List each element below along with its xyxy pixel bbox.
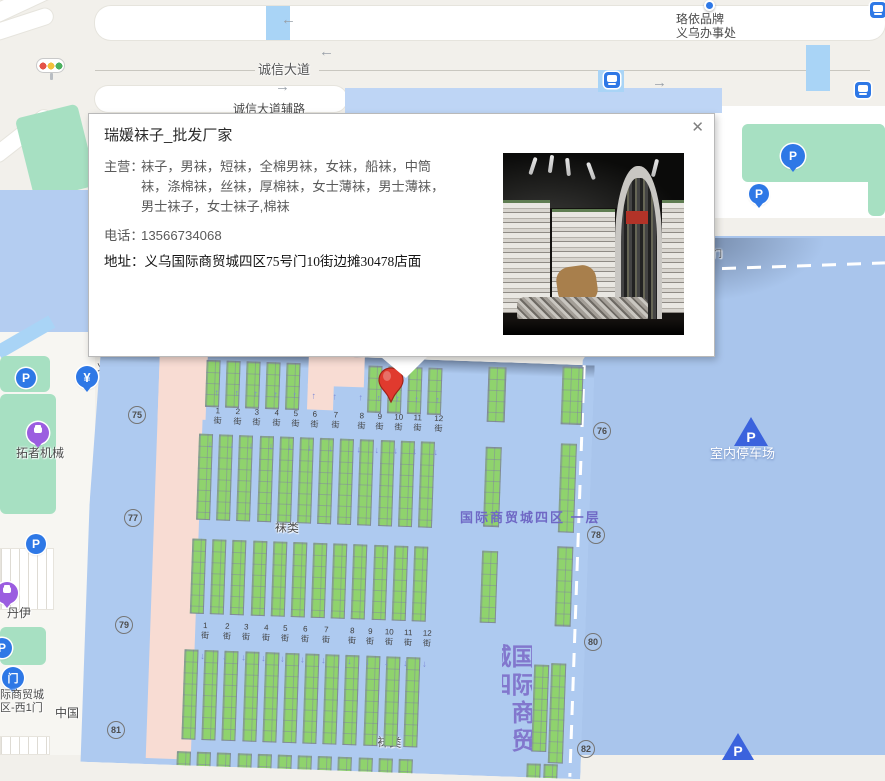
bus-stop-icon[interactable] bbox=[604, 72, 620, 88]
gate-number-82: 82 bbox=[577, 740, 595, 758]
field-label: 主营： bbox=[104, 157, 144, 177]
pano-shelf-left bbox=[503, 200, 550, 312]
close-icon[interactable]: ✕ bbox=[691, 120, 704, 136]
shop-icon[interactable] bbox=[0, 582, 18, 604]
pano-floor bbox=[503, 319, 684, 335]
gate-number-81: 81 bbox=[107, 721, 125, 739]
gate-number-80: 80 bbox=[584, 633, 602, 651]
pano-shelf-right bbox=[662, 200, 684, 312]
parking-icon[interactable]: P bbox=[781, 144, 805, 168]
stall-block bbox=[277, 755, 292, 771]
stall-block bbox=[378, 758, 393, 774]
stall-block bbox=[317, 756, 332, 772]
map-app: { "popup": { "title": "瑞媛袜子_批发厂家", "clos… bbox=[0, 0, 885, 755]
parking-icon[interactable]: P bbox=[749, 184, 769, 204]
stall-block bbox=[398, 759, 413, 775]
stall-block bbox=[237, 753, 252, 769]
field-label: 电话： bbox=[104, 226, 144, 246]
indoor-parking-icon[interactable]: P bbox=[734, 417, 768, 446]
field-value: 义乌国际商贸城四区75号门10街边摊30478店面 bbox=[145, 254, 422, 269]
bank-icon[interactable]: ¥ bbox=[76, 366, 98, 388]
gate-number-78: 78 bbox=[587, 526, 605, 544]
stall-block bbox=[358, 757, 373, 773]
field-address: 地址：义乌国际商贸城四区75号门10街边摊30478店面 bbox=[104, 252, 421, 272]
bus-stop-icon[interactable] bbox=[855, 82, 871, 98]
poi-label-luoyi: 珞依品牌 义乌办事处 bbox=[676, 12, 738, 42]
info-popup: 瑞媛袜子_批发厂家 ✕ 主营： 袜子，男袜，短袜，全棉男袜，女袜，船袜，中筒袜，… bbox=[88, 113, 715, 357]
gate-label-west1: 际商贸城 区-西1门 bbox=[0, 689, 54, 715]
indoor-parking-label: 室内停车场 bbox=[710, 446, 794, 462]
road-direction-arrow: → bbox=[275, 79, 291, 95]
bus-stop-icon[interactable] bbox=[870, 2, 885, 18]
shop-panorama-image[interactable] bbox=[503, 153, 684, 335]
gate-number-77: 77 bbox=[124, 509, 142, 527]
poi-label-danyi: 丹伊 bbox=[7, 606, 35, 620]
stall-block bbox=[543, 764, 558, 780]
parking-icon[interactable]: P bbox=[26, 534, 46, 554]
road-direction-arrow: → bbox=[652, 75, 668, 91]
road-direction-arrow: ← bbox=[281, 12, 297, 28]
gate-number-75: 75 bbox=[128, 406, 146, 424]
road-direction-arrow: ← bbox=[319, 44, 335, 60]
stall-block bbox=[257, 754, 272, 770]
gate-number-79: 79 bbox=[115, 616, 133, 634]
poi-label-tuozhe: 拓者机械 bbox=[16, 446, 68, 460]
parking-icon[interactable]: P bbox=[0, 638, 12, 658]
indoor-parking-icon[interactable]: P bbox=[722, 733, 754, 760]
field-label: 地址： bbox=[104, 254, 145, 269]
stall-block bbox=[337, 757, 352, 773]
gate-number-76: 76 bbox=[593, 422, 611, 440]
gate-icon-west1[interactable]: 门 bbox=[2, 667, 24, 689]
poi-dot-icon[interactable] bbox=[704, 0, 715, 11]
parking-icon[interactable]: P bbox=[16, 368, 36, 388]
hall-label-district4-floor1: 国际商贸城四区 一层 bbox=[460, 510, 610, 526]
field-value: 13566734068 bbox=[141, 226, 453, 246]
stall-block bbox=[526, 763, 541, 779]
field-value: 袜子，男袜，短袜，全棉男袜，女袜，船袜，中筒袜，涤棉袜，丝袜，厚棉袜，女士薄袜，… bbox=[141, 157, 453, 217]
stall-block bbox=[297, 755, 312, 771]
road-label-chengxin: 诚信大道 bbox=[255, 62, 319, 78]
hall-label-vertical: 国际商贸城四 bbox=[502, 644, 532, 756]
pano-red-sign bbox=[626, 211, 648, 224]
popup-title: 瑞媛袜子_批发厂家 bbox=[104, 124, 232, 145]
traffic-light-icon[interactable] bbox=[36, 58, 65, 73]
shop-icon[interactable] bbox=[27, 422, 49, 444]
